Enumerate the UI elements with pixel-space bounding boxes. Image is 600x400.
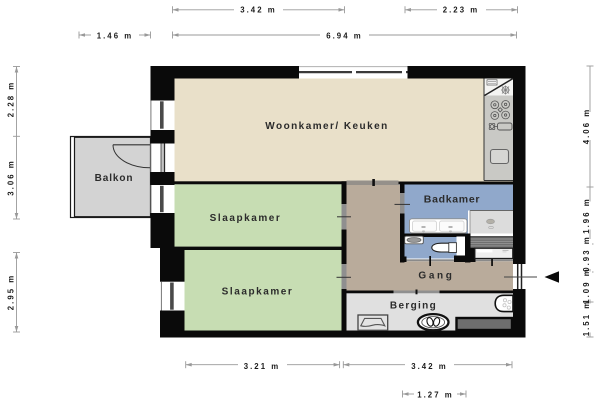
svg-text:2.23 m: 2.23 m	[443, 5, 480, 14]
svg-text:1.96 m: 1.96 m	[582, 197, 591, 234]
svg-text:1.27 m: 1.27 m	[417, 390, 454, 399]
svg-text:Gang: Gang	[418, 271, 454, 282]
svg-text:0.93 m: 0.93 m	[582, 235, 591, 272]
svg-text:6.94 m: 6.94 m	[326, 31, 363, 40]
svg-text:3.42 m: 3.42 m	[240, 5, 277, 14]
svg-text:3.21 m: 3.21 m	[244, 362, 281, 371]
svg-text:1.46 m: 1.46 m	[97, 31, 134, 40]
svg-text:Balkon: Balkon	[95, 173, 134, 184]
svg-text:Badkamer: Badkamer	[424, 194, 480, 206]
svg-text:3.06 m: 3.06 m	[7, 159, 16, 196]
svg-text:Slaapkamer: Slaapkamer	[222, 287, 294, 298]
svg-text:1.09 m: 1.09 m	[582, 267, 591, 304]
svg-text:Slaapkamer: Slaapkamer	[210, 213, 282, 224]
svg-text:3.42 m: 3.42 m	[411, 362, 448, 371]
svg-text:1.51 m: 1.51 m	[582, 300, 591, 337]
svg-text:2.28 m: 2.28 m	[7, 81, 16, 118]
svg-text:Berging: Berging	[390, 301, 437, 312]
svg-text:4.06 m: 4.06 m	[582, 108, 591, 145]
svg-text:2.95 m: 2.95 m	[7, 274, 16, 311]
svg-text:Woonkamer/ Keuken: Woonkamer/ Keuken	[265, 121, 388, 132]
